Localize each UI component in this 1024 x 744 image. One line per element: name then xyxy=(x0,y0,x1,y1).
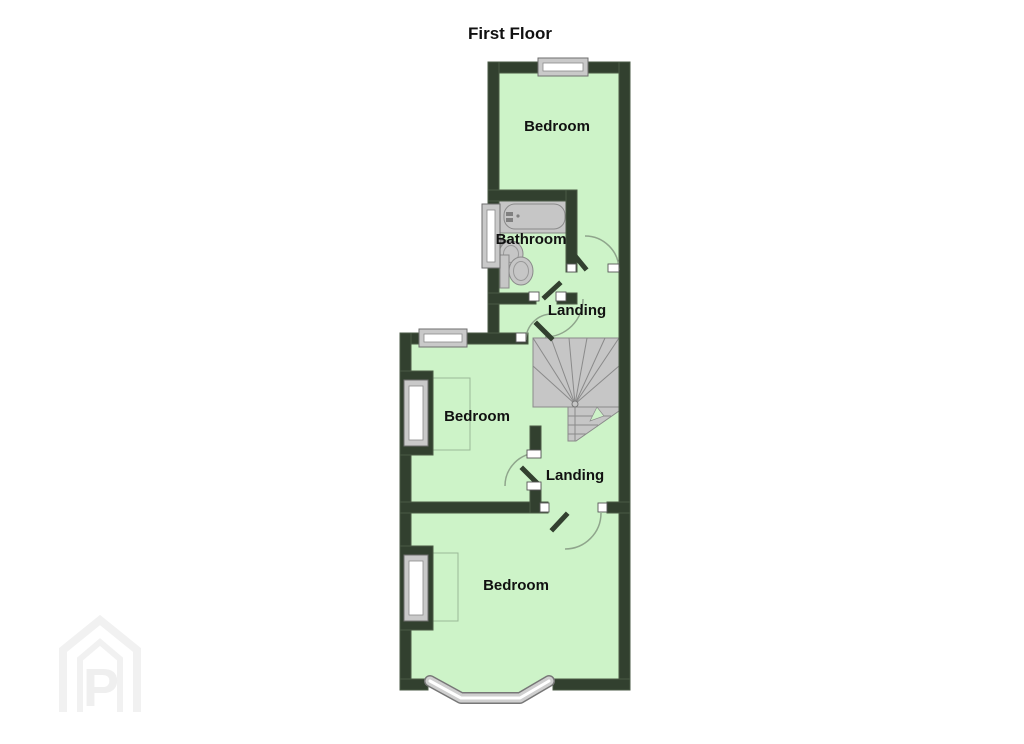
room-label-landing-upper: Landing xyxy=(548,302,606,319)
bathtub-icon xyxy=(499,199,571,233)
room-label-bedroom-top: Bedroom xyxy=(524,118,590,135)
page-title: First Floor xyxy=(468,24,552,44)
room-label-bathroom: Bathroom xyxy=(496,231,567,248)
floor-plan: P xyxy=(0,0,1024,744)
room-label-bedroom-middle: Bedroom xyxy=(444,408,510,425)
room-label-landing-lower: Landing xyxy=(546,467,604,484)
watermark-letter: P xyxy=(83,658,119,718)
floor-plan-drawing: P xyxy=(0,0,1024,744)
room-label-bedroom-bottom: Bedroom xyxy=(483,577,549,594)
watermark-logo: P xyxy=(63,620,137,718)
